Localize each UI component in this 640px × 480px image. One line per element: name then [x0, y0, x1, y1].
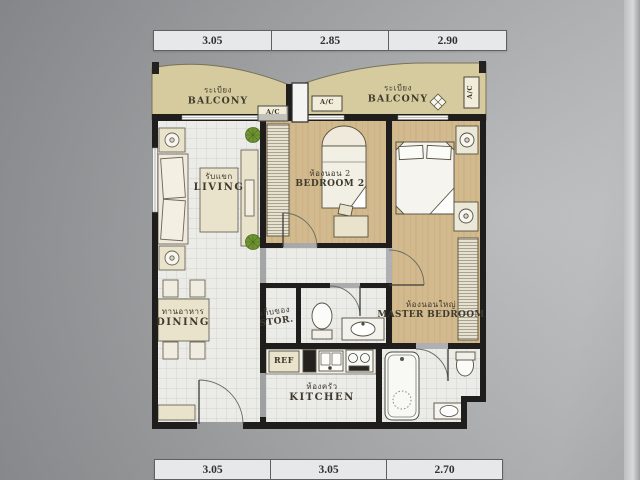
label-ac-3: A/C: [467, 85, 475, 99]
label-refrigerator: REF: [274, 356, 294, 366]
dining-chair: [190, 280, 205, 297]
label-dining-thai: ทานอาหาร: [156, 307, 210, 317]
label-balcony-right-thai: ระเบียง: [368, 84, 428, 94]
label-ac-1: A/C: [266, 109, 280, 117]
toilet: [312, 303, 332, 329]
label-kitchen: ห้องครัว KITCHEN: [289, 382, 354, 404]
wardrobe: [267, 124, 289, 236]
paper-edge: [624, 0, 640, 480]
dimension-bar-top: 3.05 2.85 2.90: [153, 30, 507, 51]
label-kitchen-en: KITCHEN: [289, 392, 354, 404]
label-balcony-right: ระเบียง BALCONY: [368, 84, 428, 105]
label-balcony-left-thai: ระเบียง: [188, 86, 248, 96]
label-dining: ทานอาหาร DINING: [156, 307, 210, 329]
label-balcony-left-en: BALCONY: [188, 95, 248, 106]
label-living-thai: รับแขก: [194, 172, 245, 182]
label-balcony-left: ระเบียง BALCONY: [188, 86, 248, 107]
dining-chair: [163, 280, 178, 297]
bathtub: [385, 352, 419, 420]
label-living: รับแขก LIVING: [194, 172, 245, 194]
label-kitchen-thai: ห้องครัว: [289, 382, 354, 392]
dining-chair: [163, 342, 178, 359]
dimension-bar-bottom: 3.05 3.05 2.70: [154, 459, 503, 480]
label-bedroom2-en: BEDROOM 2: [295, 178, 364, 189]
label-balcony-right-en: BALCONY: [368, 93, 428, 104]
label-master-bedroom: ห้องนอนใหญ่ MASTER BEDROOM: [377, 300, 484, 320]
label-ac-2: A/C: [320, 99, 334, 107]
dimension-cell: 3.05: [271, 460, 387, 479]
label-bedroom2-thai: ห้องนอน 2: [295, 169, 364, 179]
column: [292, 83, 308, 122]
floor-plan: ระเบียง BALCONY ระเบียง BALCONY A/C A/C …: [146, 58, 492, 440]
label-living-en: LIVING: [194, 182, 245, 194]
entry-bench: [158, 405, 195, 420]
tall-cabinet: [303, 350, 316, 372]
dimension-cell: 3.05: [155, 460, 271, 479]
dining-chair: [190, 342, 205, 359]
desk-chair: [338, 204, 353, 216]
dimension-cell: 2.85: [272, 31, 390, 50]
dimension-cell: 2.70: [387, 460, 502, 479]
floorplan-photo: 3.05 2.85 2.90: [0, 0, 640, 480]
dimension-cell: 3.05: [154, 31, 272, 50]
dimension-cell: 2.90: [389, 31, 506, 50]
label-master-bedroom-thai: ห้องนอนใหญ่: [377, 300, 484, 310]
wardrobe: [458, 238, 478, 340]
label-master-bedroom-en: MASTER BEDROOM: [377, 309, 484, 320]
label-bedroom2: ห้องนอน 2 BEDROOM 2: [295, 169, 364, 189]
desk: [334, 216, 368, 237]
label-dining-en: DINING: [156, 317, 210, 329]
